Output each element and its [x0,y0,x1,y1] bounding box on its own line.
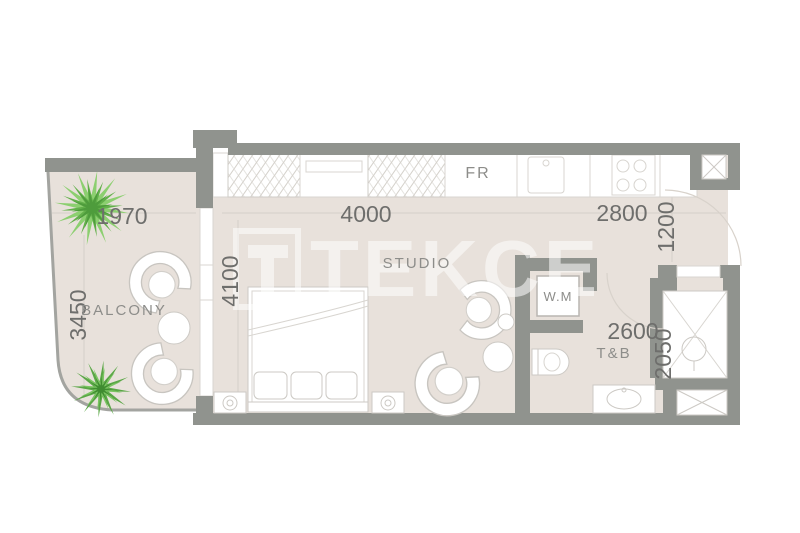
window-glass [200,208,213,396]
washing-machine-label: W.M [544,289,573,304]
wall-segment [723,278,740,291]
stool [498,314,514,330]
wardrobe [228,153,300,197]
door-leaf [677,266,720,277]
side-table [483,342,513,372]
pillow [291,372,322,399]
dresser [300,153,368,197]
wall-segment [658,265,677,278]
dim-studio-width: 4000 [340,201,391,227]
wall-segment [45,158,200,172]
bath-label: T&B [596,345,631,362]
dim-kitchen-width: 2800 [596,200,647,226]
kitchen-and-wardrobe-row [213,153,697,197]
balcony-window [200,208,213,396]
dim-studio-depth: 4100 [217,255,243,306]
floor-plan-page: TEKCE 1970 3450 BALCONY 4100 4000 STUDIO… [0,0,800,533]
wall-segment [690,178,740,190]
floor-plan: TEKCE 1970 3450 BALCONY 4100 4000 STUDIO… [0,0,800,533]
studio-label: STUDIO [383,255,452,272]
wall-segment [720,265,740,278]
dim-balcony-width: 1970 [96,203,147,229]
fridge-label: FR [465,165,490,182]
wall-segment [663,390,677,415]
wall-segment [196,148,213,208]
wall-segment [228,143,740,155]
pillow [254,372,287,399]
wall-segment [196,396,213,416]
balcony-label: BALCONY [81,302,167,319]
pillow [326,372,357,399]
wall-segment [515,320,583,333]
wardrobe [368,153,445,197]
headboard [248,402,368,412]
dim-bath-depth: 2050 [650,328,676,379]
wall-segment [193,413,740,425]
dim-entry-depth: 1200 [653,201,679,252]
watermark-logo-t [261,245,274,295]
